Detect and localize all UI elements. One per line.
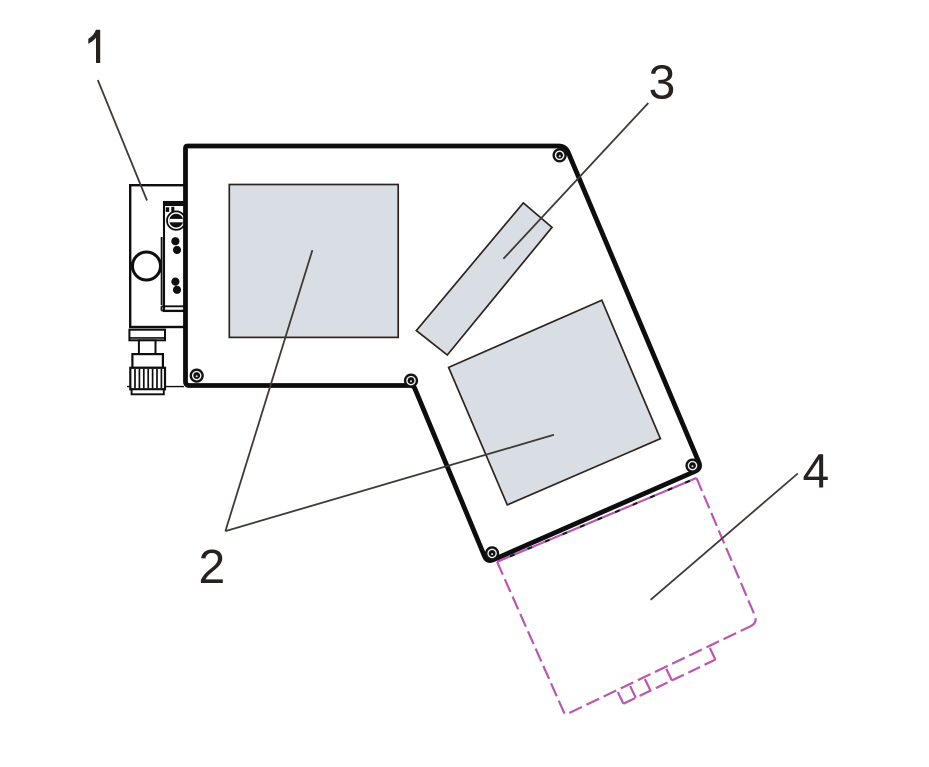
svg-text:3: 3: [649, 57, 676, 110]
svg-text:2: 2: [199, 541, 226, 594]
svg-text:4: 4: [802, 446, 829, 499]
